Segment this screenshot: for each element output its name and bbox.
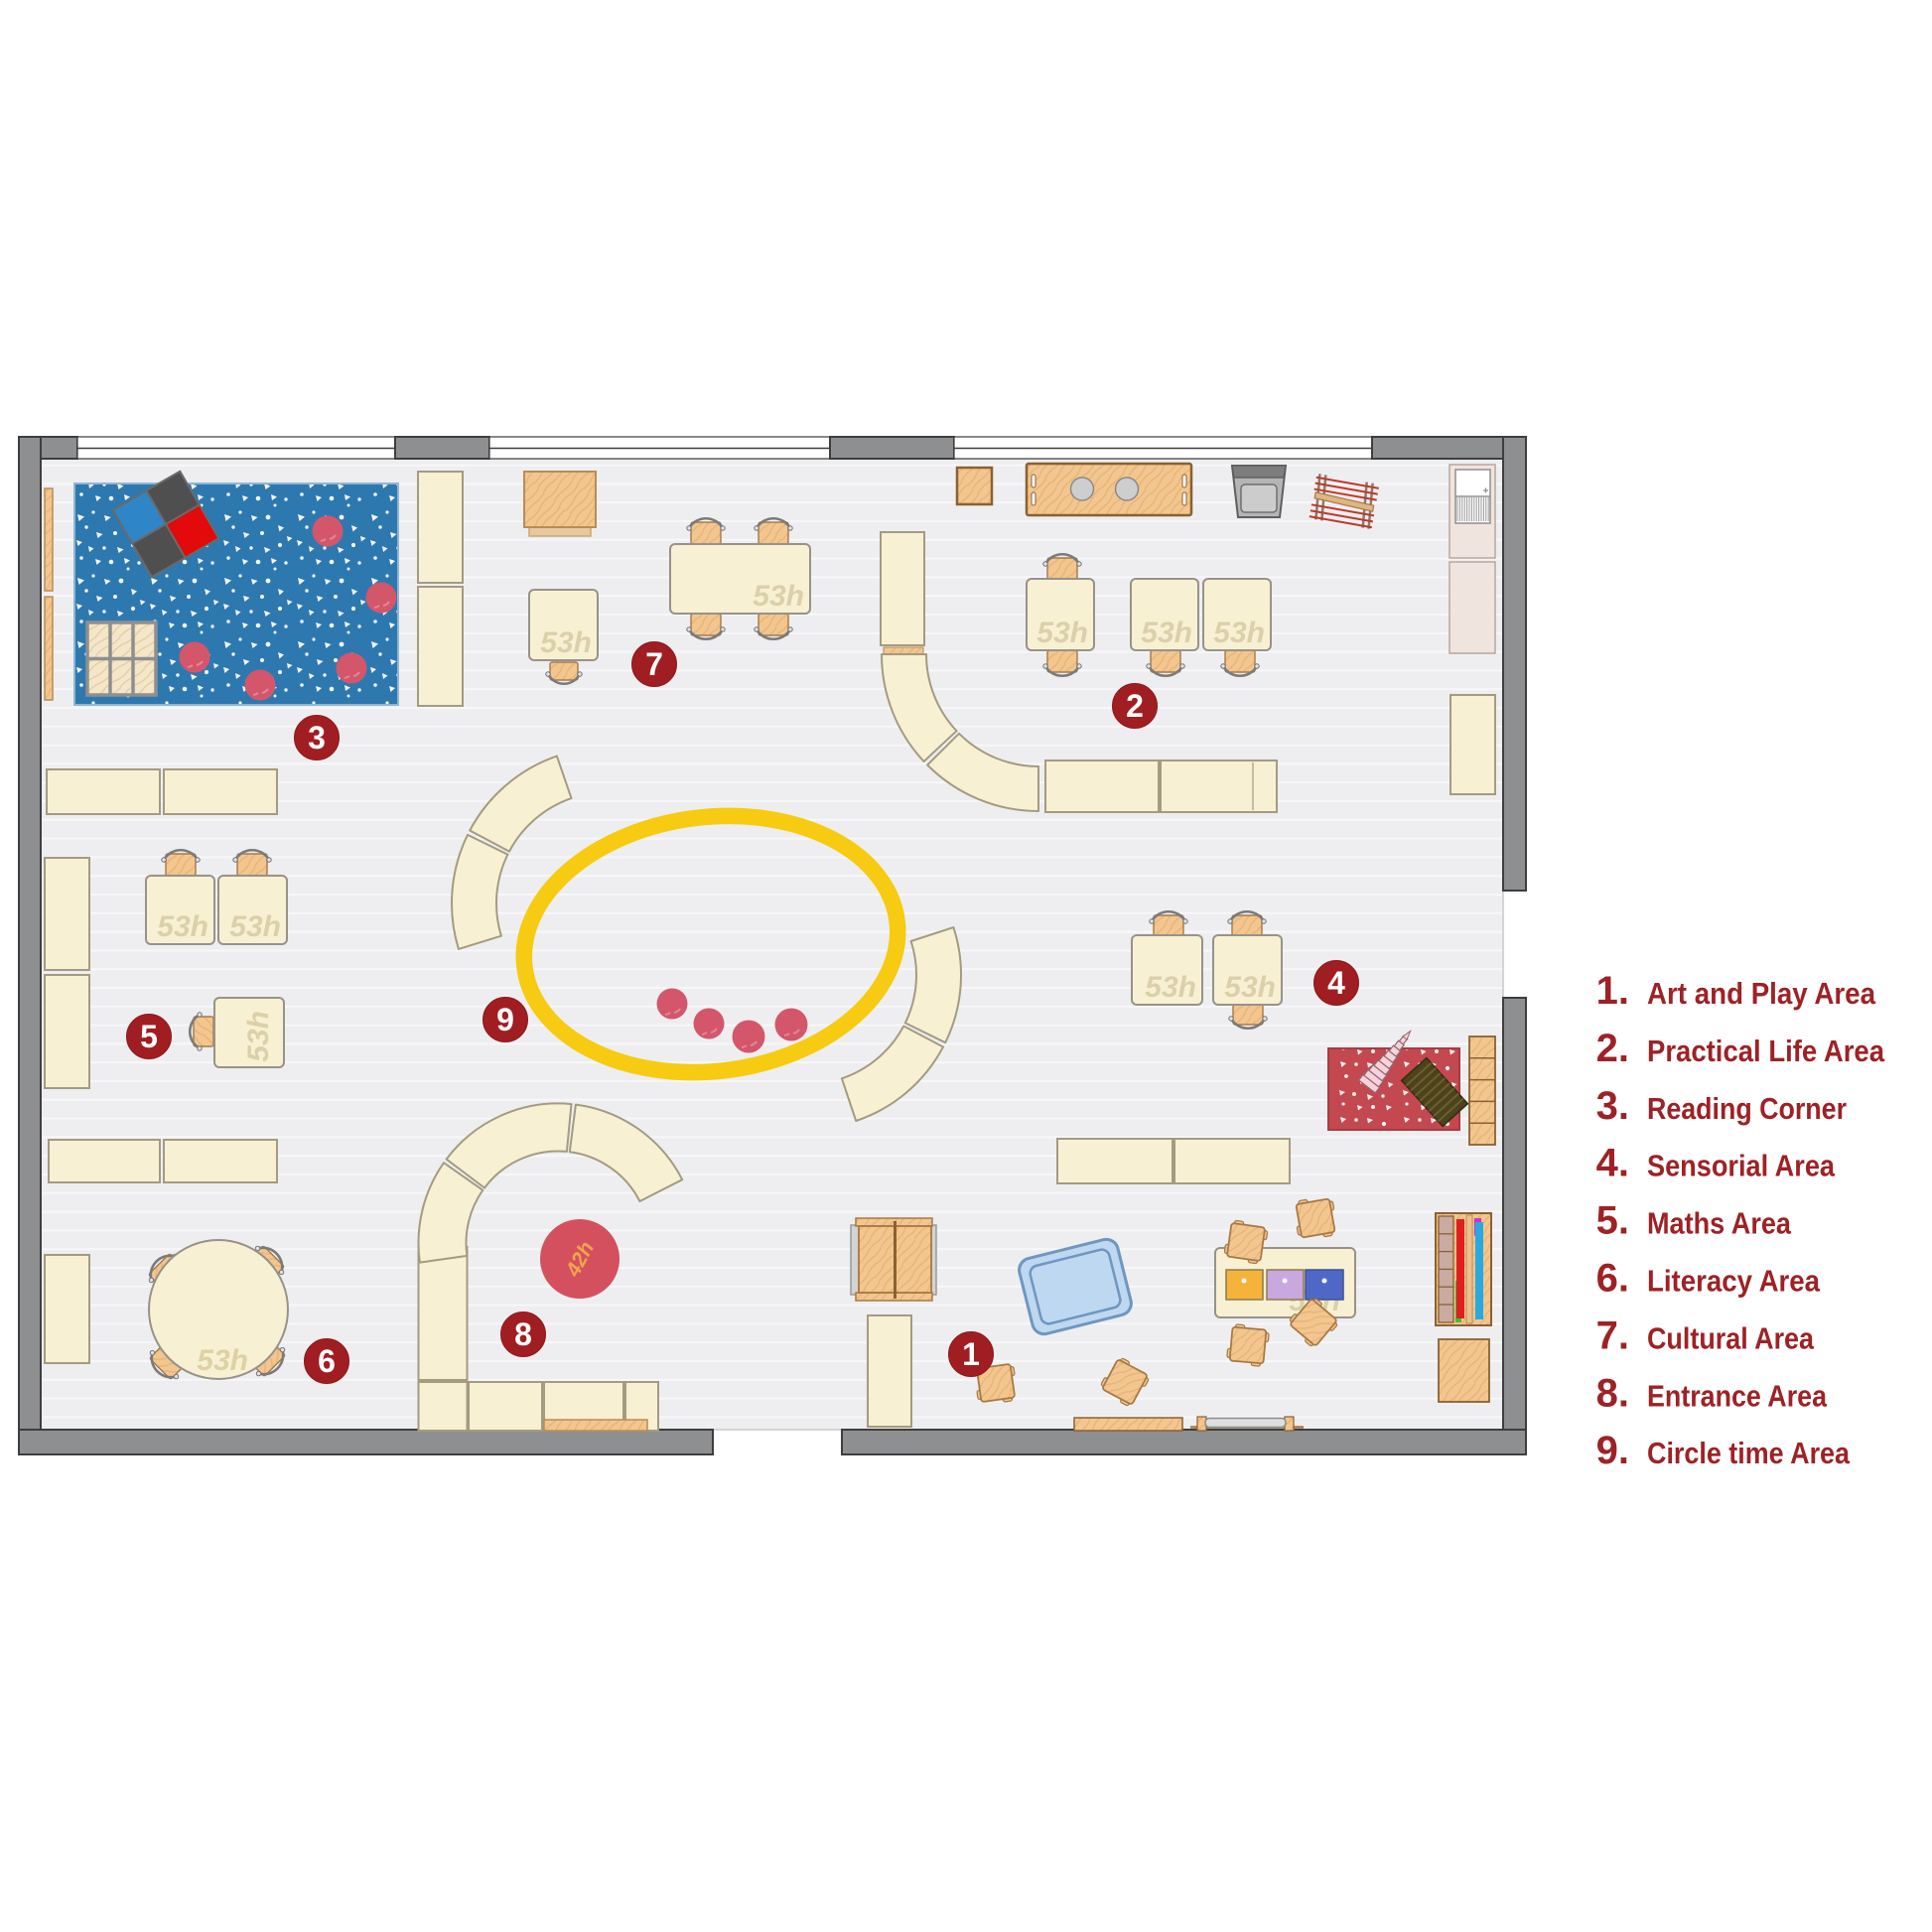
svg-text:53h: 53h — [540, 626, 592, 659]
svg-text:53h: 53h — [1213, 617, 1265, 649]
svg-text:2: 2 — [1126, 688, 1144, 724]
svg-text:5: 5 — [140, 1019, 158, 1054]
svg-text:2.: 2. — [1596, 1027, 1629, 1070]
svg-text:Circle time Area: Circle time Area — [1647, 1436, 1851, 1470]
svg-text:53h: 53h — [1036, 617, 1088, 649]
svg-text:Practical Life Area: Practical Life Area — [1647, 1034, 1885, 1068]
svg-text:53h: 53h — [1145, 971, 1196, 1004]
svg-text:9.: 9. — [1596, 1429, 1629, 1472]
svg-text:1.: 1. — [1596, 969, 1629, 1013]
svg-text:4: 4 — [1327, 965, 1345, 1001]
svg-text:Art and Play Area: Art and Play Area — [1647, 976, 1876, 1011]
svg-text:53h: 53h — [753, 580, 804, 613]
svg-text:53h: 53h — [1141, 617, 1192, 649]
svg-text:3.: 3. — [1596, 1084, 1629, 1128]
svg-text:53h: 53h — [242, 1011, 275, 1062]
svg-text:Cultural Area: Cultural Area — [1647, 1320, 1815, 1355]
svg-text:7: 7 — [645, 646, 663, 682]
svg-text:53h: 53h — [229, 910, 281, 943]
svg-text:Literacy Area: Literacy Area — [1647, 1264, 1821, 1299]
svg-text:53h: 53h — [197, 1344, 248, 1377]
svg-text:4.: 4. — [1596, 1142, 1629, 1185]
svg-text:7.: 7. — [1596, 1313, 1629, 1357]
svg-text:6: 6 — [318, 1343, 336, 1379]
svg-text:53h: 53h — [1224, 971, 1276, 1004]
svg-text:6.: 6. — [1596, 1257, 1629, 1301]
svg-text:Entrance Area: Entrance Area — [1647, 1378, 1828, 1413]
svg-text:1: 1 — [962, 1336, 980, 1372]
svg-text:3: 3 — [308, 720, 326, 756]
svg-text:Sensorial Area: Sensorial Area — [1647, 1149, 1836, 1183]
svg-text:Reading Corner: Reading Corner — [1647, 1091, 1847, 1126]
svg-text:5.: 5. — [1596, 1199, 1629, 1243]
svg-text:8.: 8. — [1596, 1371, 1629, 1415]
svg-text:9: 9 — [496, 1002, 514, 1037]
svg-text:8: 8 — [514, 1316, 532, 1352]
svg-text:Maths Area: Maths Area — [1647, 1206, 1792, 1241]
svg-text:53h: 53h — [157, 910, 208, 943]
